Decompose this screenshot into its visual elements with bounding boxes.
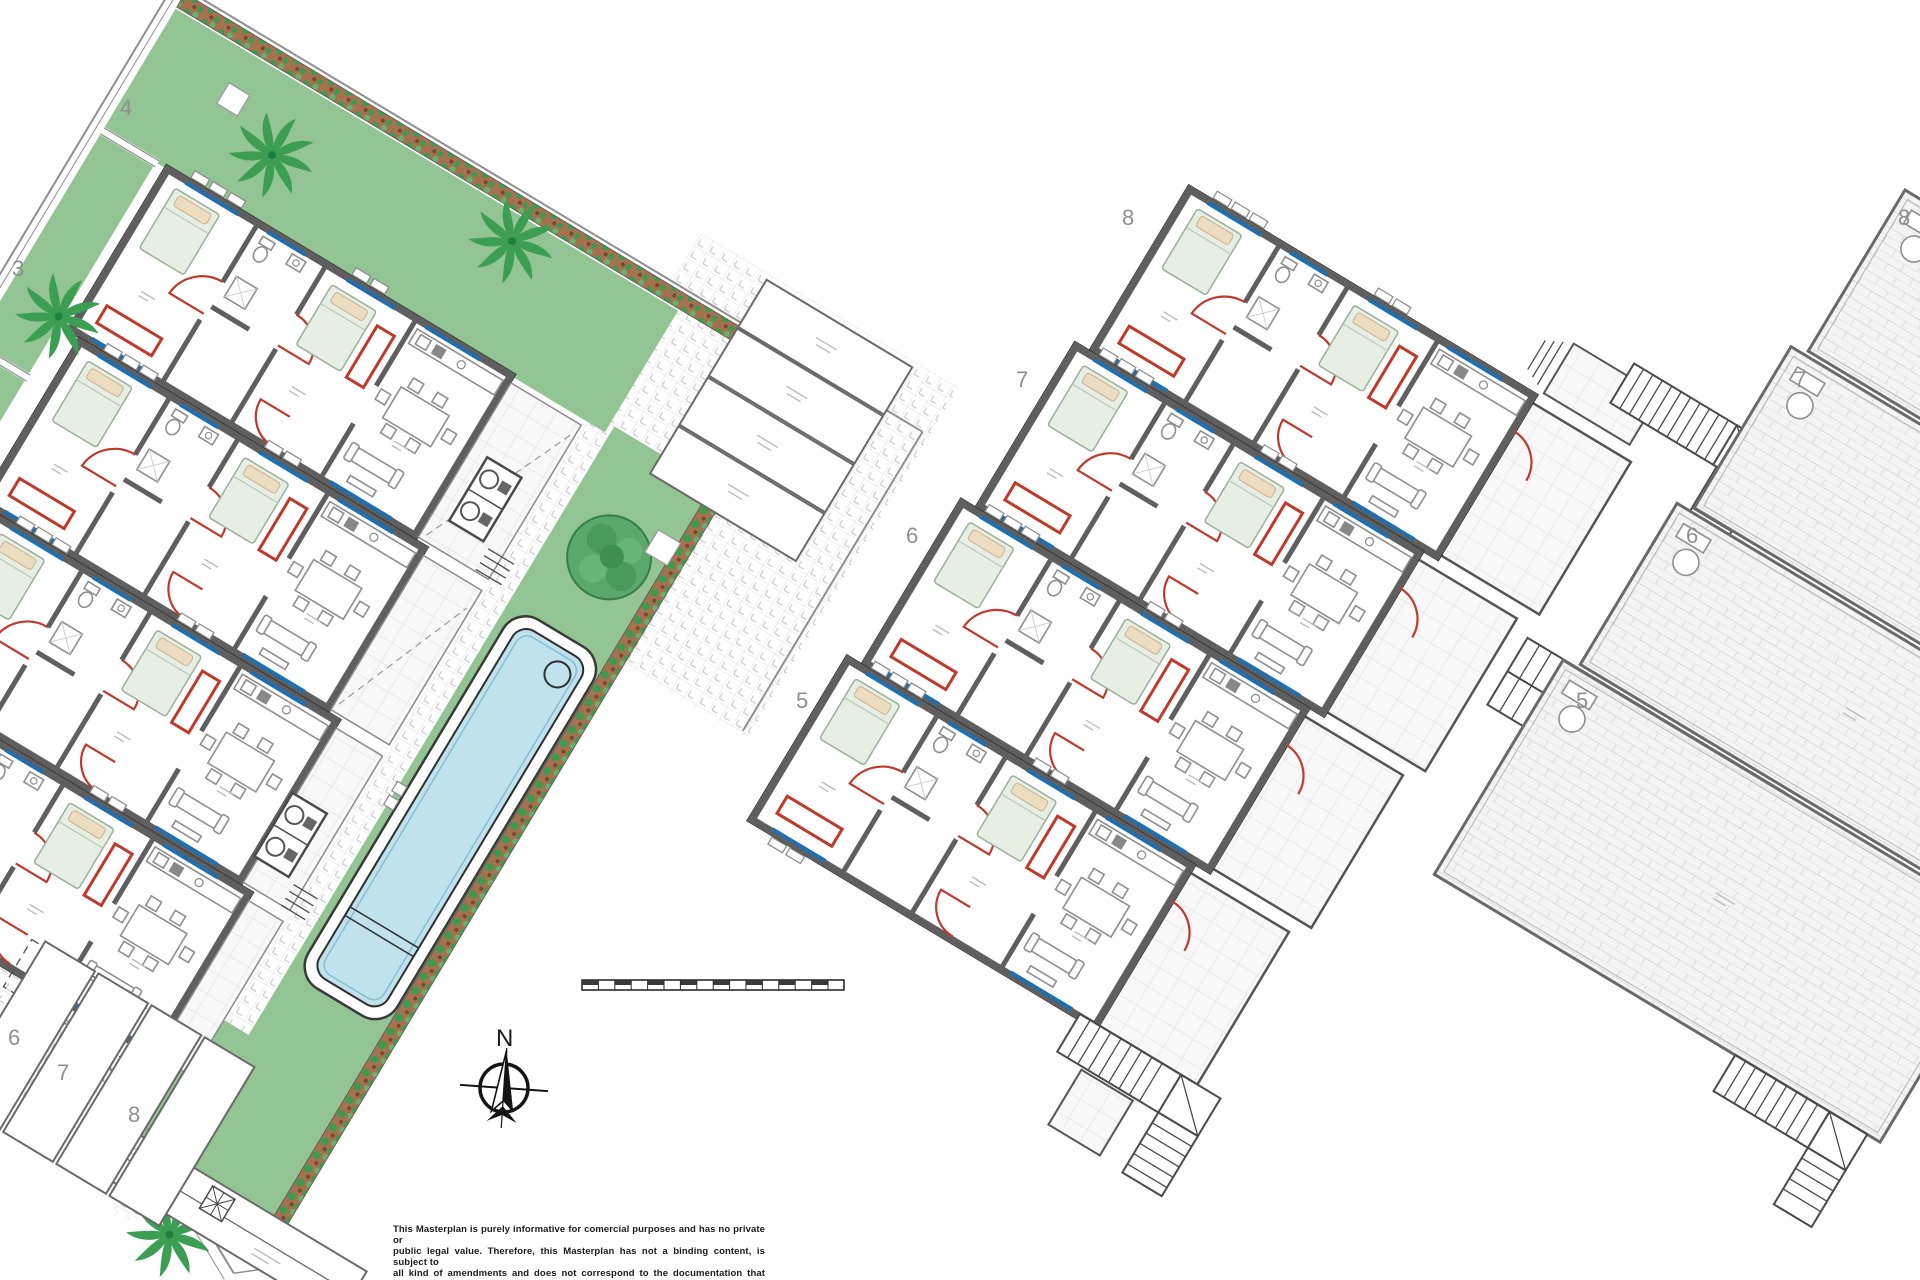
parking-number-7: 7 (57, 1060, 69, 1085)
compass-rose: N (457, 1025, 550, 1131)
masterplan-canvas: 6 7 8 4 3 8 7 6 5 (0, 0, 1920, 1280)
parking-number-8: 8 (128, 1102, 140, 1127)
middle-unit-number-8: 8 (1122, 205, 1134, 230)
middle-unit-number-6: 6 (906, 523, 918, 548)
right-unit-number-5: 5 (1576, 688, 1588, 713)
plot-number-4: 4 (120, 95, 132, 120)
right-unit-number-6: 6 (1686, 523, 1698, 548)
disclaimer-note: This Masterplan is purely informative fo… (393, 1224, 765, 1280)
masterplan-page: 6 7 8 4 3 8 7 6 5 (0, 0, 1920, 1280)
plot-number-3: 3 (12, 256, 24, 281)
scale-bar (582, 980, 844, 990)
north-label: N (496, 1025, 513, 1052)
disclaimer-line-3: all kind of amendments and does not corr… (393, 1268, 765, 1280)
middle-unit-number-7: 7 (1016, 367, 1028, 392)
right-unit-number-7: 7 (1794, 367, 1806, 392)
disclaimer-line-1: This Masterplan is purely informative fo… (393, 1224, 765, 1246)
right-unit-number-8: 8 (1898, 205, 1910, 230)
middle-unit-number-5: 5 (796, 688, 808, 713)
disclaimer-line-2: public legal value. Therefore, this Mast… (393, 1246, 765, 1268)
parking-number-6: 6 (8, 1025, 20, 1050)
